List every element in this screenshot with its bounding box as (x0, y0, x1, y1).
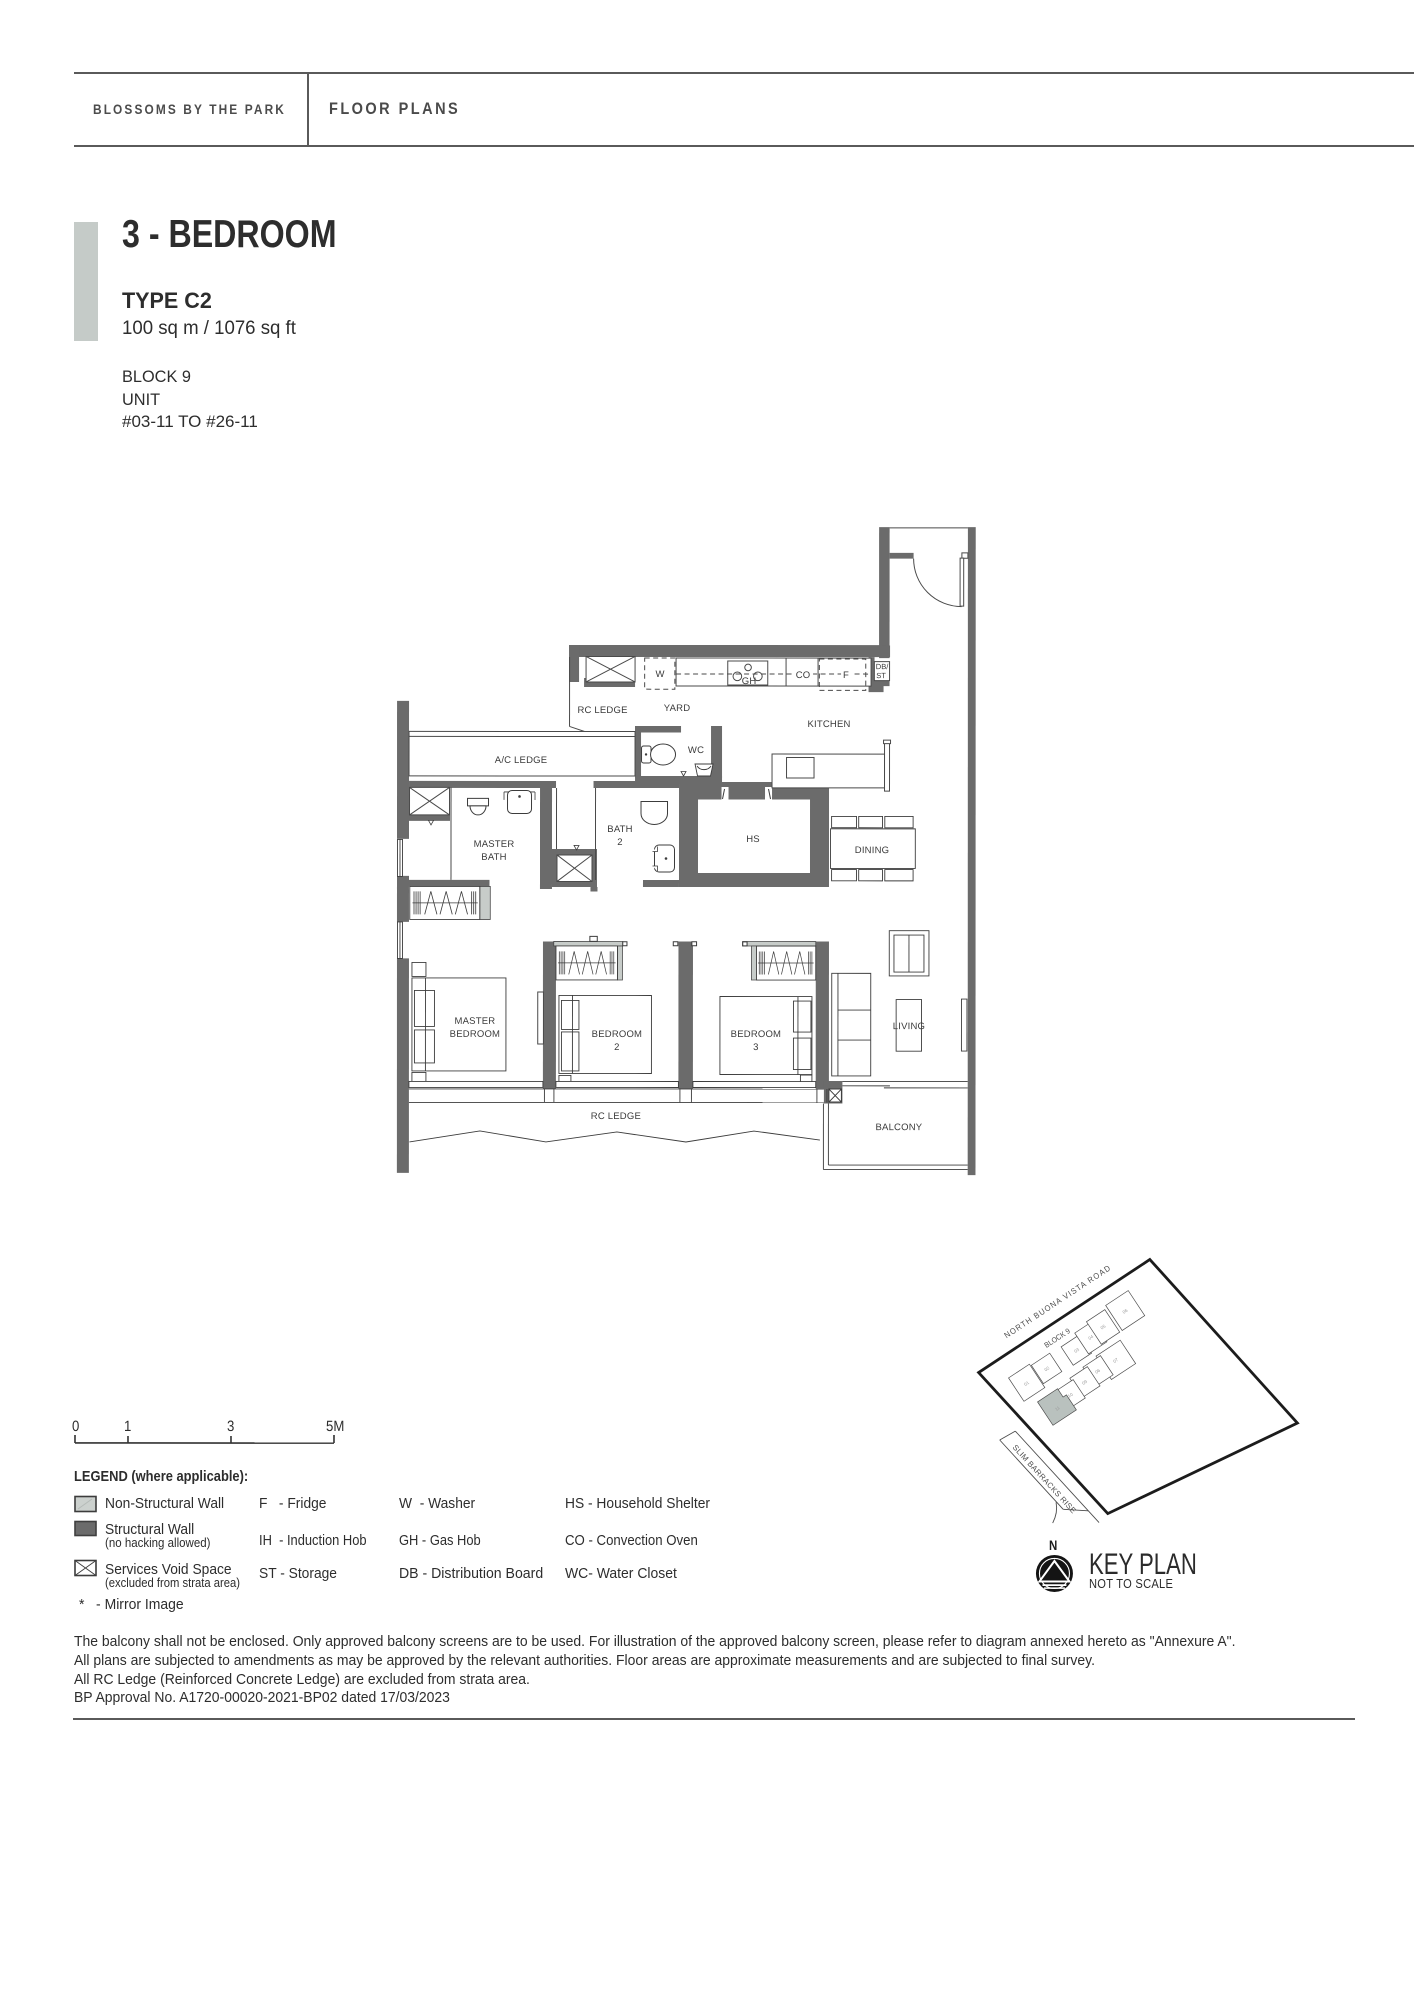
svg-text:GH: GH (742, 676, 757, 687)
svg-text:DINING: DINING (855, 845, 889, 856)
svg-text:ST: ST (876, 671, 886, 680)
svg-text:LIVING: LIVING (893, 1021, 925, 1032)
svg-text:BALCONY: BALCONY (875, 1122, 922, 1133)
svg-text:MASTER: MASTER (474, 839, 515, 850)
svg-text:DB/: DB/ (876, 662, 890, 671)
svg-text:0: 0 (72, 1417, 79, 1434)
svg-text:F: F (843, 670, 849, 681)
svg-text:RC LEDGE: RC LEDGE (591, 1111, 641, 1122)
svg-text:RC LEDGE: RC LEDGE (577, 705, 627, 716)
svg-text:BATH: BATH (607, 824, 632, 835)
svg-text:2: 2 (614, 1042, 619, 1053)
svg-text:WC: WC (688, 745, 704, 756)
svg-text:BEDROOM: BEDROOM (450, 1029, 501, 1040)
svg-text:CO: CO (796, 670, 811, 681)
svg-text:1: 1 (124, 1417, 131, 1434)
svg-text:3: 3 (753, 1042, 758, 1053)
svg-text:BEDROOM: BEDROOM (592, 1029, 643, 1040)
svg-text:MASTER: MASTER (455, 1016, 496, 1027)
svg-text:3: 3 (227, 1417, 234, 1434)
svg-text:KITCHEN: KITCHEN (807, 719, 850, 730)
svg-text:BEDROOM: BEDROOM (731, 1029, 782, 1040)
svg-text:YARD: YARD (664, 703, 691, 714)
svg-text:5M: 5M (326, 1417, 344, 1434)
svg-text:A/C LEDGE: A/C LEDGE (495, 755, 547, 766)
svg-text:BATH: BATH (481, 852, 506, 863)
svg-text:HS: HS (746, 834, 760, 845)
svg-text:W: W (655, 669, 664, 680)
svg-text:2: 2 (617, 837, 622, 848)
